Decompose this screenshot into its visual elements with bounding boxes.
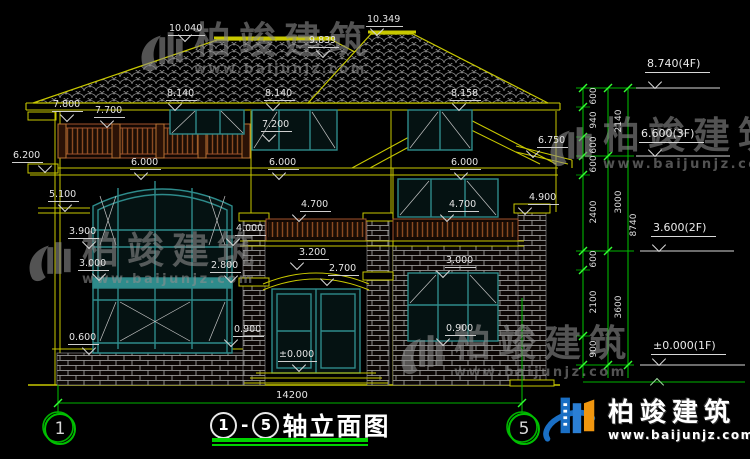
elevation-dimension-label: 0.600 bbox=[68, 333, 99, 345]
chain-dimension-number: 3600 bbox=[614, 289, 624, 325]
elevation-dimension-label: 6.000 bbox=[268, 158, 299, 170]
chain-dimension-number: 2100 bbox=[589, 284, 599, 320]
chain-dimension-number: 8740 bbox=[629, 207, 639, 243]
elevation-dimension-label: 2.800 bbox=[210, 261, 241, 273]
brand-logo-icon bbox=[536, 392, 602, 450]
title-axis-start-bubble: 1 bbox=[210, 412, 237, 439]
elevation-dimension-label: 6.000 bbox=[130, 158, 161, 170]
watermark-brand-text: 柏竣建筑 bbox=[454, 325, 634, 364]
elevation-dimension-label: 4.000 bbox=[235, 224, 266, 236]
chain-dimension-number: 2140 bbox=[614, 103, 624, 139]
elevation-dimension-label: 3.900 bbox=[68, 227, 99, 239]
storey-level-label: 8.740(4F) bbox=[645, 57, 710, 73]
chain-dimension-number: 600 bbox=[589, 241, 599, 277]
watermark-logo-icon bbox=[24, 232, 74, 294]
storey-level-label: 3.600(2F) bbox=[651, 221, 716, 237]
elevation-dimension-label: 0.900 bbox=[445, 324, 476, 336]
elevation-dimension-label: 4.700 bbox=[300, 200, 331, 212]
elevation-dimension-label: 4.900 bbox=[528, 193, 559, 205]
watermark-url-text: www.baijunjz.com bbox=[194, 62, 374, 77]
elevation-dimension-label: 3.000 bbox=[78, 259, 109, 271]
title-axis-end-bubble: 5 bbox=[252, 412, 279, 439]
watermark-logo-icon bbox=[396, 325, 446, 387]
chain-dimension-number: 600 bbox=[589, 146, 599, 182]
chain-dimension-number: 2400 bbox=[589, 194, 599, 230]
chain-dimension-number: 3000 bbox=[614, 184, 624, 220]
storey-level-label: 6.600(3F) bbox=[639, 127, 704, 143]
elevation-dimension-label: 0.900 bbox=[233, 325, 264, 337]
brand-url-text: www.baijunjz.com bbox=[608, 428, 750, 442]
cad-elevation-screenshot: { "colors": { "line_yellow": "#c8c800", … bbox=[0, 0, 750, 459]
watermark-url-text: www.baijunjz.com bbox=[603, 157, 750, 172]
axis-grid-bubble: 1 bbox=[44, 413, 76, 445]
title-underline-thick bbox=[212, 438, 368, 442]
elevation-dimension-label: 3.000 bbox=[445, 256, 476, 268]
chain-dimension-number: 900 bbox=[589, 331, 599, 367]
elevation-dimension-label: 6.000 bbox=[450, 158, 481, 170]
elevation-dimension-label: 3.200 bbox=[298, 248, 329, 260]
title-underline-thin bbox=[212, 444, 368, 446]
brand-logo: 柏竣建筑 www.baijunjz.com bbox=[536, 392, 750, 450]
title-dash: - bbox=[241, 415, 248, 436]
elevation-dimension-label: 6.750 bbox=[537, 136, 568, 148]
elevation-dimension-label: 6.200 bbox=[12, 151, 43, 163]
elevation-dimension-label: 2.700 bbox=[328, 264, 359, 276]
elevation-dimension-label: 4.700 bbox=[448, 200, 479, 212]
brand-name-text: 柏竣建筑 bbox=[608, 400, 736, 427]
storey-level-label: ±0.000(1F) bbox=[651, 339, 726, 355]
watermark-url-text: www.baijunjz.com bbox=[454, 365, 634, 380]
watermark-brand-text: 柏竣建筑 bbox=[194, 22, 374, 61]
overall-span-dimension: 14200 bbox=[276, 390, 308, 401]
